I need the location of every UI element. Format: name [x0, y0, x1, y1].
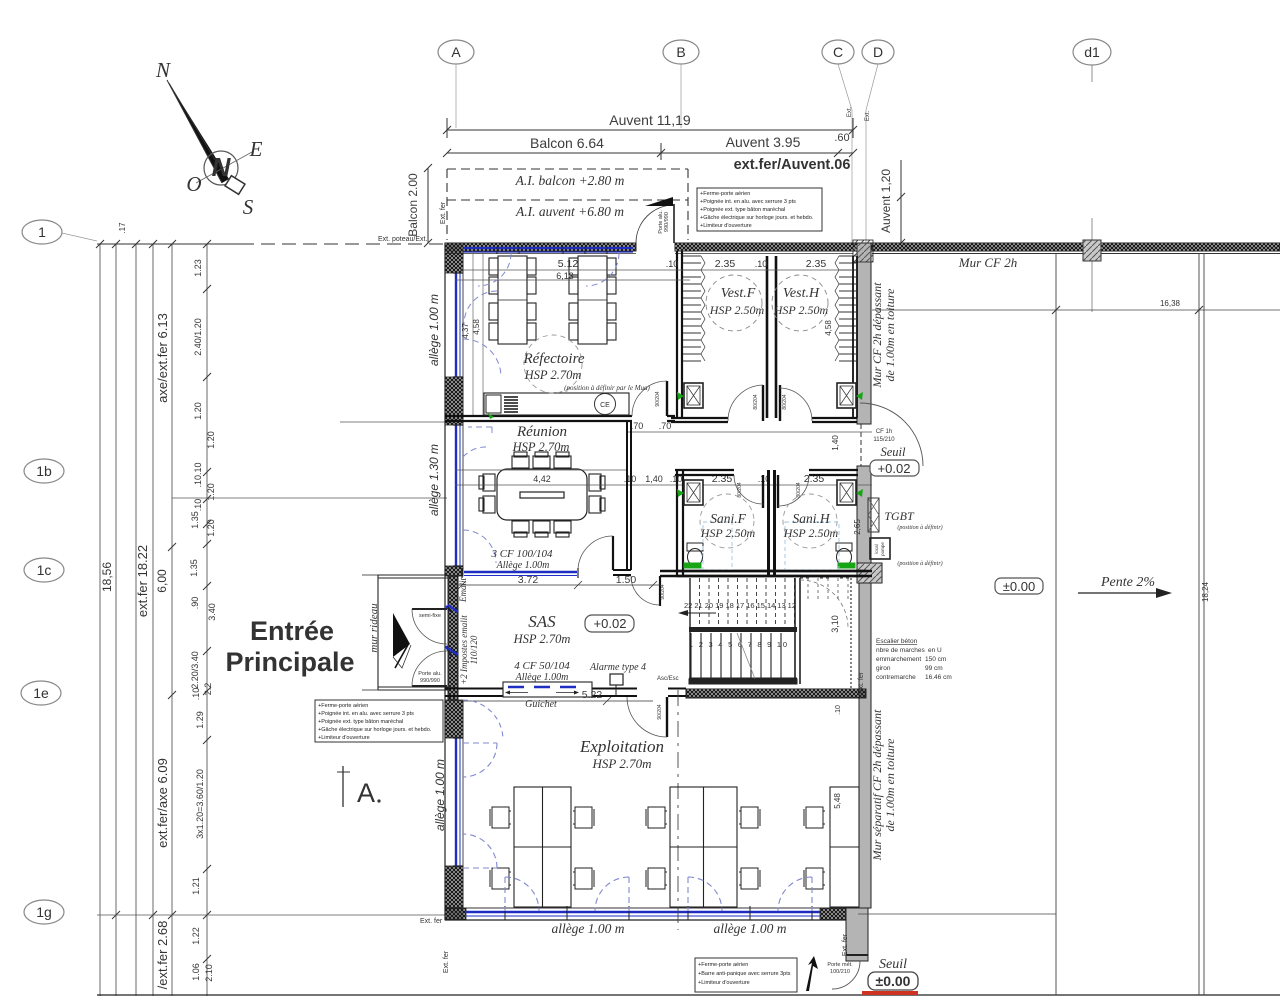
svg-text:Allège 1.00m: Allège 1.00m — [496, 560, 550, 571]
svg-text:contremarche: contremarche — [876, 674, 916, 681]
svg-text:3.72: 3.72 — [518, 574, 539, 586]
svg-text:1.23: 1.23 — [193, 259, 203, 277]
svg-text:O: O — [186, 172, 201, 196]
svg-text:CF 1h: CF 1h — [876, 429, 892, 435]
svg-text:1.20: 1.20 — [206, 431, 216, 449]
svg-text:Ext. fer: Ext. fer — [858, 671, 865, 694]
svg-text:local: local — [874, 544, 879, 553]
svg-text:Mur CF 2h dépassant: Mur CF 2h dépassant — [870, 282, 884, 389]
svg-text:1g: 1g — [36, 904, 52, 920]
svg-text:Réunion: Réunion — [516, 424, 567, 440]
svg-text:Porte mét.: Porte mét. — [827, 962, 853, 968]
svg-text:3,10: 3,10 — [830, 615, 840, 633]
svg-text:1.06: 1.06 — [191, 963, 201, 981]
svg-text:CE: CE — [600, 402, 610, 409]
svg-text:HSP 2.50m: HSP 2.50m — [773, 303, 829, 317]
svg-text:2.2: 2.2 — [203, 683, 213, 696]
svg-text:Sani.H: Sani.H — [792, 511, 830, 526]
svg-text:Seuil: Seuil — [879, 957, 907, 972]
svg-text:S: S — [243, 195, 254, 219]
svg-text:2,65: 2,65 — [853, 519, 862, 535]
svg-text:allège 1.00 m: allège 1.00 m — [551, 921, 624, 936]
svg-text:(position à définir par le Mua: (position à définir par le Mua) — [564, 384, 650, 392]
svg-text:HSP 2.70m: HSP 2.70m — [513, 632, 571, 646]
svg-text:E: E — [249, 137, 263, 161]
svg-text:.60: .60 — [834, 132, 849, 144]
svg-text:Asc/Esc: Asc/Esc — [657, 676, 679, 682]
svg-text:Vest.F: Vest.F — [721, 286, 756, 301]
svg-text:.90: .90 — [190, 597, 200, 610]
svg-text:(position à définir): (position à définir) — [897, 560, 942, 567]
svg-text:4,42: 4,42 — [533, 474, 551, 484]
svg-text:18,24: 18,24 — [1201, 581, 1210, 602]
svg-text:1.21: 1.21 — [191, 877, 201, 895]
svg-text:+0.02: +0.02 — [878, 461, 911, 476]
svg-text:ext.fer 18.22: ext.fer 18.22 — [135, 545, 150, 617]
svg-text:+Poignée int. en alu. avec ser: +Poignée int. en alu. avec serrure 3 pts — [318, 711, 414, 717]
svg-text:Auvent 11,19: Auvent 11,19 — [609, 112, 691, 128]
svg-text:80/204: 80/204 — [753, 394, 759, 410]
svg-text:+Limiteur d'ouverture: +Limiteur d'ouverture — [700, 223, 752, 229]
svg-text:N: N — [212, 152, 232, 182]
svg-text:/ext.fer 2.68: /ext.fer 2.68 — [155, 921, 170, 990]
svg-text:ext.fer/axe 6.09: ext.fer/axe 6.09 — [155, 758, 170, 848]
svg-text:990/990: 990/990 — [420, 678, 440, 684]
svg-text:+2 Impostes emalit: +2 Impostes emalit — [459, 615, 469, 685]
svg-text:d1: d1 — [1084, 44, 1100, 60]
svg-text:+Limiteur d'ouverture: +Limiteur d'ouverture — [318, 735, 370, 741]
svg-text:de 1.00m en toiture: de 1.00m en toiture — [883, 288, 897, 382]
svg-text:Ext. poteau/Ext.: Ext. poteau/Ext. — [378, 236, 427, 243]
svg-text:99 cm: 99 cm — [925, 665, 943, 672]
svg-text:Ext. fer: Ext. fer — [842, 933, 849, 956]
svg-text:allège 1.00 m: allège 1.00 m — [427, 294, 441, 366]
svg-text:Balcon 2.00: Balcon 2.00 — [406, 173, 420, 237]
svg-text:Escalier béton: Escalier béton — [876, 638, 918, 645]
svg-text:90/204: 90/204 — [657, 704, 663, 720]
svg-text:1b: 1b — [36, 463, 52, 479]
svg-text:4,58: 4,58 — [824, 320, 833, 336]
svg-text:+Ferme-porte aérien: +Ferme-porte aérien — [698, 962, 748, 968]
svg-text:Réfectoire: Réfectoire — [522, 351, 584, 367]
svg-text:Vest.H: Vest.H — [783, 286, 820, 301]
svg-text:4 CF 50/104: 4 CF 50/104 — [514, 660, 570, 672]
svg-text:+Gâche électrique sur horloge: +Gâche électrique sur horloge jours. et … — [318, 727, 432, 733]
svg-text:A.I. balcon +2.80 m: A.I. balcon +2.80 m — [515, 173, 625, 188]
svg-text:HSP 2.70m: HSP 2.70m — [524, 368, 582, 382]
svg-text:pompe: pompe — [880, 542, 885, 556]
svg-text:.10: .10 — [755, 259, 768, 269]
svg-text:.10: .10 — [666, 259, 679, 269]
svg-text:115/210: 115/210 — [873, 437, 895, 443]
svg-text:16,38: 16,38 — [1160, 299, 1181, 308]
svg-text:2.35: 2.35 — [806, 258, 827, 270]
svg-text:80/204: 80/204 — [782, 394, 788, 410]
svg-text:allège 1.00 m: allège 1.00 m — [713, 921, 786, 936]
svg-text:allège 1.30 m: allège 1.30 m — [427, 444, 441, 516]
svg-text:3.40: 3.40 — [207, 603, 217, 621]
svg-text:5,48: 5,48 — [833, 793, 842, 809]
svg-text:Mur séparatif CF 2h dépassant: Mur séparatif CF 2h dépassant — [870, 709, 884, 861]
svg-text:HSP 2.50m: HSP 2.50m — [783, 526, 839, 540]
svg-text:+Barre anti-panique avec serru: +Barre anti-panique avec serrure 3pts — [698, 971, 791, 977]
svg-text:5.22: 5.22 — [582, 689, 603, 701]
svg-text:.10.10: .10.10 — [193, 462, 203, 487]
svg-text:N: N — [155, 58, 171, 82]
svg-text:Entrée: Entrée — [250, 616, 334, 646]
svg-text:emmarchement: emmarchement — [876, 656, 921, 663]
svg-text:2.20/3.40: 2.20/3.40 — [190, 651, 200, 689]
svg-text:Seuil: Seuil — [881, 445, 907, 459]
svg-text:Ext.: Ext. — [865, 111, 871, 122]
svg-text:(position à définir): (position à définir) — [897, 524, 942, 531]
svg-text:4,58: 4,58 — [472, 319, 481, 335]
svg-text:80/204: 80/204 — [737, 482, 743, 498]
svg-text:HSP 2.70m: HSP 2.70m — [592, 756, 652, 771]
svg-text:.17: .17 — [118, 222, 127, 234]
svg-text:Porte alu.: Porte alu. — [418, 671, 442, 677]
svg-text:A: A — [357, 778, 375, 808]
svg-text:6,13: 6,13 — [556, 271, 574, 281]
svg-text:2.35: 2.35 — [715, 258, 736, 270]
svg-text:Principale: Principale — [225, 647, 354, 677]
svg-text:1.35: 1.35 — [190, 511, 200, 529]
svg-text:+Ferme-porte aérien: +Ferme-porte aérien — [318, 703, 368, 709]
svg-text:de 1.00m en toiture: de 1.00m en toiture — [883, 738, 897, 832]
svg-text:±0.00: ±0.00 — [1003, 579, 1035, 594]
svg-text:990/990: 990/990 — [664, 212, 670, 232]
svg-text:Ext. fer: Ext. fer — [420, 918, 443, 925]
svg-text:+Poignée int. en alu. avec ser: +Poignée int. en alu. avec serrure 3 pts — [700, 199, 796, 205]
svg-text:4,37: 4,37 — [461, 323, 470, 339]
svg-text:100/210: 100/210 — [830, 969, 850, 975]
svg-text:HSP 2.50m: HSP 2.50m — [709, 303, 765, 317]
svg-text:1e: 1e — [33, 685, 49, 701]
svg-text:Sani.F: Sani.F — [710, 511, 746, 526]
svg-text:1.20: 1.20 — [206, 519, 216, 537]
svg-text:16.46 cm: 16.46 cm — [925, 674, 952, 681]
svg-text:en U: en U — [928, 647, 942, 654]
svg-text:2.10: 2.10 — [204, 964, 214, 982]
svg-text:.10: .10 — [193, 499, 203, 512]
svg-text:C: C — [833, 44, 843, 60]
svg-text:±0.00: ±0.00 — [876, 973, 911, 989]
svg-text:.10: .10 — [191, 688, 201, 701]
svg-text:+Ferme-porte aérien: +Ferme-porte aérien — [700, 191, 750, 197]
svg-text:Allège 1.00m: Allège 1.00m — [515, 672, 569, 683]
svg-text:Ext.: Ext. — [847, 107, 853, 118]
svg-text:1.20: 1.20 — [193, 402, 203, 420]
svg-text:+0.02: +0.02 — [594, 616, 627, 631]
svg-text:+Poignée ext. type bâton maréc: +Poignée ext. type bâton maréchal — [700, 207, 785, 213]
svg-text:nbre de marches: nbre de marches — [876, 647, 926, 654]
svg-text:TGBT: TGBT — [884, 509, 915, 523]
svg-text:3 CF 100/104: 3 CF 100/104 — [490, 548, 553, 560]
svg-text:1,40: 1,40 — [831, 435, 840, 451]
svg-text:Balcon 6.64: Balcon 6.64 — [530, 135, 604, 151]
svg-text:Exploitation: Exploitation — [579, 737, 664, 756]
svg-text:18,56: 18,56 — [100, 562, 114, 592]
svg-text:.10: .10 — [835, 705, 842, 715]
svg-text:ext.fer/Auvent.06: ext.fer/Auvent.06 — [734, 157, 851, 173]
svg-text:axe/ext.fer 6.13: axe/ext.fer 6.13 — [155, 313, 170, 403]
svg-text:Auvent 1,20: Auvent 1,20 — [879, 169, 893, 233]
svg-text:1.35: 1.35 — [189, 559, 199, 577]
svg-text:giron: giron — [876, 665, 891, 672]
svg-text:HSP 2.50m: HSP 2.50m — [700, 526, 756, 540]
svg-text:D: D — [873, 44, 883, 60]
svg-text:Ext. fer: Ext. fer — [440, 201, 447, 224]
svg-text:Emalit: Emalit — [458, 578, 468, 603]
svg-text:A: A — [451, 44, 461, 60]
svg-text:5.12: 5.12 — [558, 258, 579, 270]
svg-text:SAS: SAS — [528, 612, 556, 631]
svg-text:Mur CF 2h: Mur CF 2h — [958, 255, 1018, 270]
svg-text:Alarme type 4: Alarme type 4 — [589, 662, 646, 673]
svg-text:1: 1 — [38, 224, 46, 240]
svg-text:90/204: 90/204 — [660, 584, 666, 600]
svg-text:.70: .70 — [631, 421, 644, 431]
svg-text:1c: 1c — [37, 562, 52, 578]
svg-text:3x1.20=3.60/1.20: 3x1.20=3.60/1.20 — [195, 769, 205, 839]
svg-text:.70: .70 — [659, 421, 672, 431]
svg-text:150 cm: 150 cm — [925, 656, 946, 663]
svg-text:90/204: 90/204 — [655, 391, 661, 407]
svg-text:1.29: 1.29 — [195, 711, 205, 729]
svg-text:Auvent 3.95: Auvent 3.95 — [726, 134, 801, 150]
svg-text:6,00: 6,00 — [155, 569, 169, 593]
svg-text:+Limiteur d'ouverture: +Limiteur d'ouverture — [698, 980, 750, 986]
svg-text:2.40/1.20: 2.40/1.20 — [193, 318, 203, 356]
svg-text:+Gâche électrique sur horloge: +Gâche électrique sur horloge jours. et … — [700, 215, 814, 221]
svg-text:mur rideau: mur rideau — [368, 603, 380, 653]
svg-text:allège 1.00 m: allège 1.00 m — [433, 759, 447, 831]
svg-text:22 21 20 19 18 17 16 15 14 13: 22 21 20 19 18 17 16 15 14 13 12 — [684, 601, 796, 610]
svg-text:1.22: 1.22 — [191, 927, 201, 945]
svg-text:Ext. fer: Ext. fer — [443, 950, 450, 973]
svg-text:1.50: 1.50 — [616, 574, 637, 586]
svg-text:A.I. auvent +6.80 m: A.I. auvent +6.80 m — [515, 204, 624, 219]
svg-text:+Poignée ext. type bâton maréc: +Poignée ext. type bâton maréchal — [318, 719, 403, 725]
svg-text:Pente 2%: Pente 2% — [1100, 575, 1155, 590]
svg-text:semi-fixe: semi-fixe — [419, 613, 441, 619]
svg-text:B: B — [676, 44, 685, 60]
svg-text:110/120: 110/120 — [469, 635, 479, 664]
svg-text:1,40: 1,40 — [645, 474, 663, 484]
